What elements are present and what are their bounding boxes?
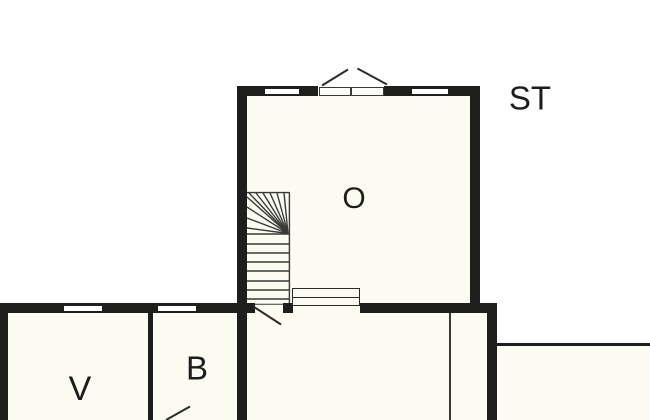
interior-steps <box>292 288 360 306</box>
window-o-top-left <box>264 88 300 95</box>
room-v-label: V <box>69 372 92 406</box>
step-tread-line <box>293 297 359 299</box>
room-o-label: O <box>342 184 365 214</box>
entry-door-leaf-left <box>319 87 352 96</box>
partition-closet <box>449 313 451 420</box>
window-v <box>63 305 103 312</box>
annotation-st-label: ST <box>509 82 551 115</box>
wall-lower-left <box>0 303 8 420</box>
wall-divider-v-b <box>148 306 153 420</box>
terrace-floor <box>497 346 650 420</box>
stair-door-opening <box>255 303 283 313</box>
room-b-label: B <box>186 352 208 385</box>
wall-o-left <box>237 86 247 420</box>
entry-door-leaf-right <box>351 87 384 96</box>
wall-o-right <box>470 86 480 313</box>
floorplan-canvas: O ST V B <box>0 0 650 420</box>
wall-lower-right <box>487 303 497 420</box>
window-o-top-right <box>411 88 449 95</box>
window-b <box>157 305 197 312</box>
terrace-edge <box>497 343 650 346</box>
